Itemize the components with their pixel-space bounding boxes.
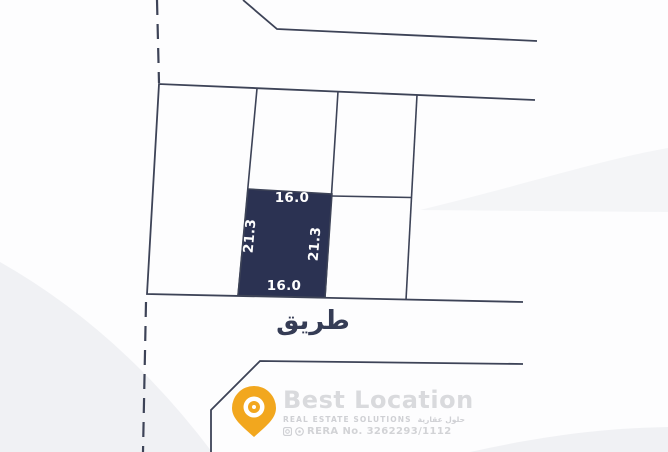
plot-map-image: 16.0 16.0 21.3 21.3 طريق Best Location R…: [0, 0, 668, 452]
plot-dimension-top: 16.0: [266, 191, 318, 205]
background-swoosh-bottom-right: [470, 427, 668, 452]
dashed-boundary-top: [157, 0, 159, 83]
plot-dimension-right: 21.3: [306, 223, 323, 264]
brand-rera-line: RERA No. 3262293/1112: [283, 426, 474, 437]
subdivision-line-horizontal: [332, 196, 412, 198]
upper-road-edge-line: [243, 0, 537, 41]
background-swoosh-right: [420, 148, 668, 212]
parcel-block-outline: [147, 84, 535, 302]
brand-tagline-en: REAL ESTATE SOLUTIONS: [283, 415, 412, 424]
road-label: طريق: [265, 304, 361, 338]
plot-dimension-bottom: 16.0: [258, 279, 310, 293]
map-pin-icon: [230, 384, 278, 440]
brand-tagline-ar: حلول عقارية: [418, 415, 465, 424]
brand-name: Best Location: [283, 387, 474, 413]
best-location-watermark: Best Location REAL ESTATE SOLUTIONSحلول …: [230, 384, 474, 440]
snapchat-icon: [295, 427, 304, 436]
plot-dimension-left: 21.3: [241, 215, 258, 256]
background-swoosh-bottom-left: [0, 262, 212, 452]
instagram-icon: [283, 427, 292, 436]
map-pin-dot-center: [252, 405, 256, 409]
brand-tagline: REAL ESTATE SOLUTIONSحلول عقارية: [283, 415, 474, 424]
brand-rera-number: RERA No. 3262293/1112: [307, 426, 452, 437]
